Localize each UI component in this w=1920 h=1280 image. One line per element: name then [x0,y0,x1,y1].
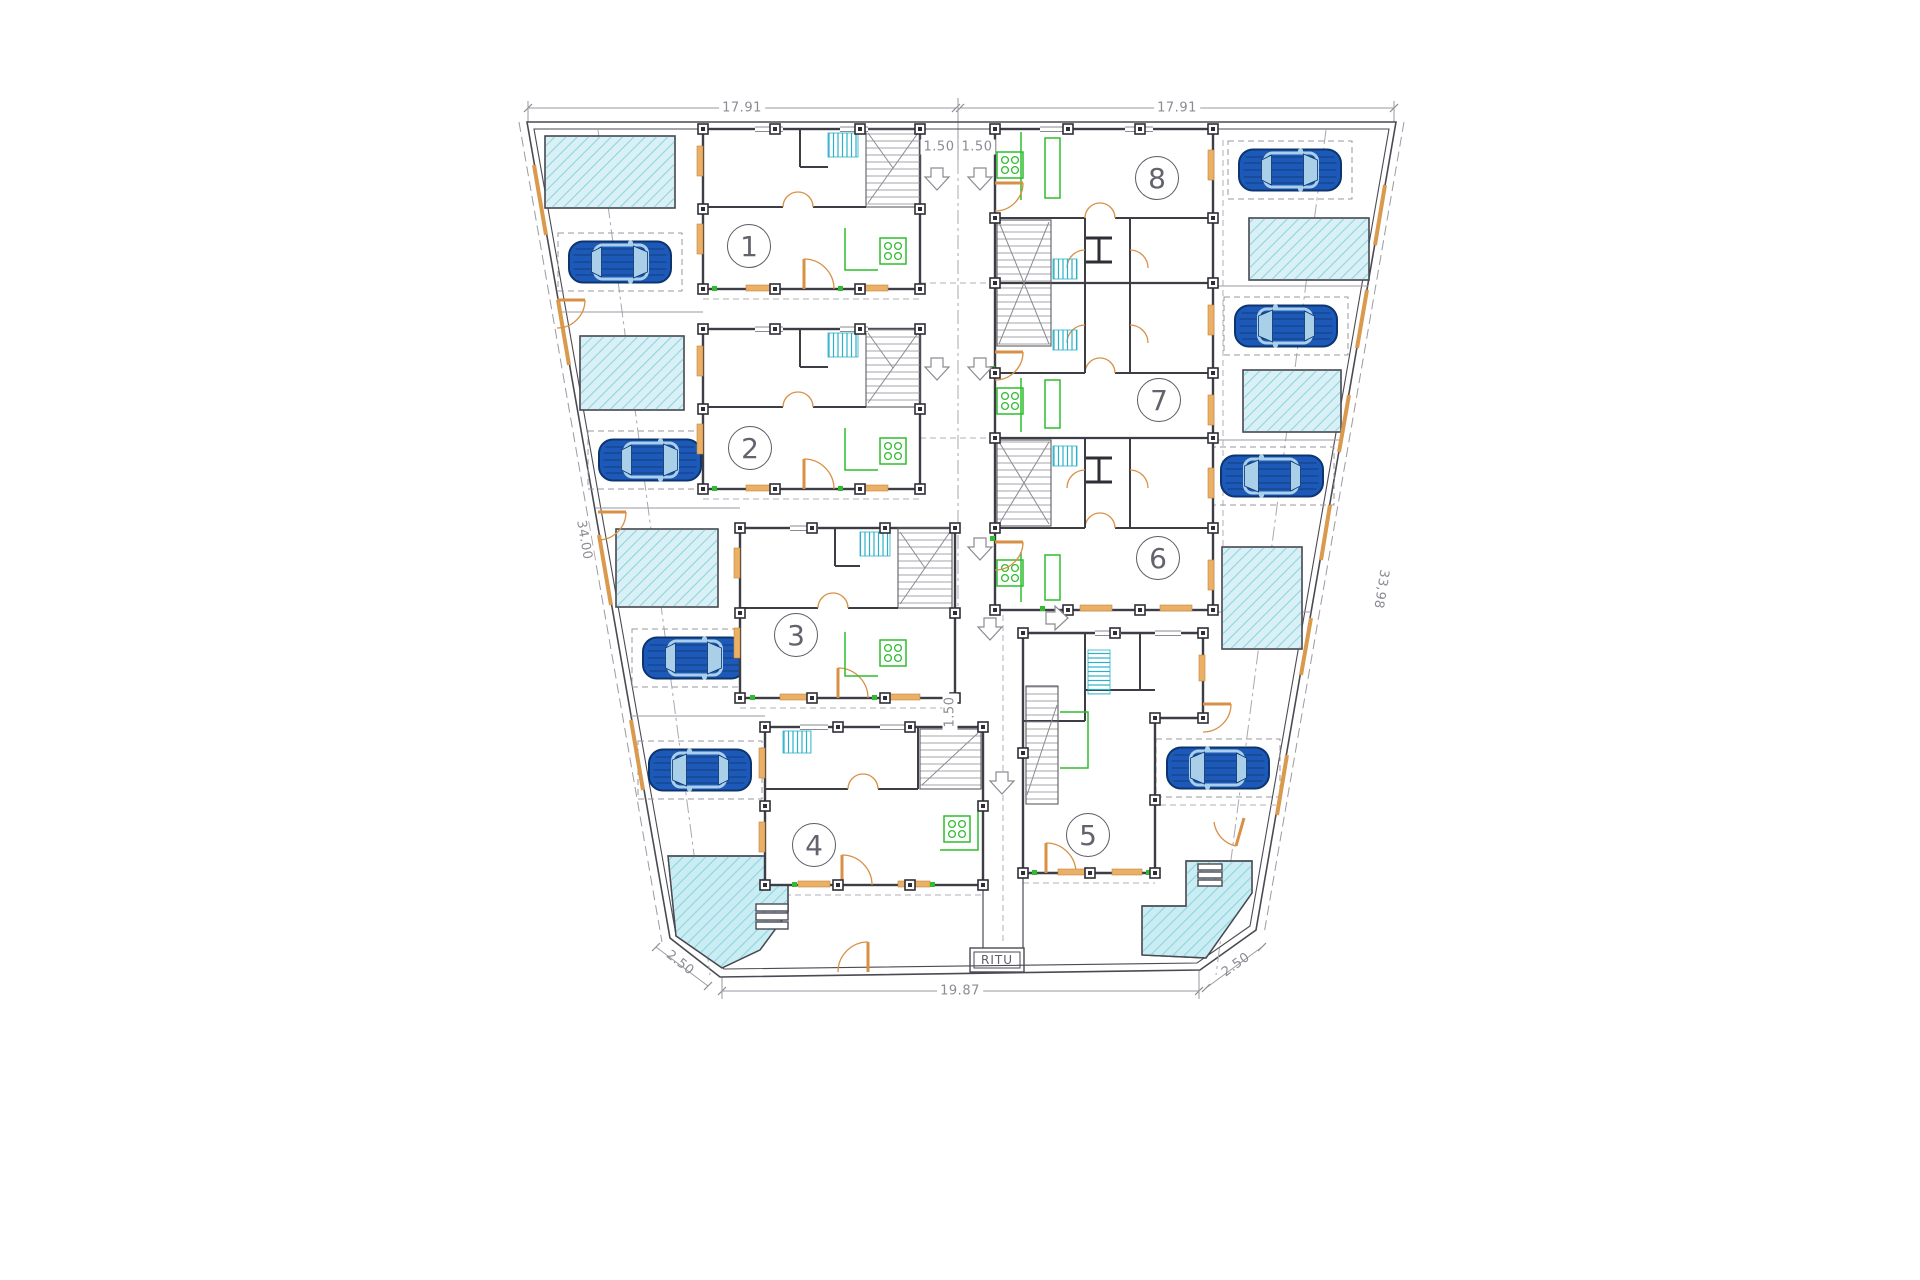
pool-unit2 [580,336,684,410]
building-unit1 [697,126,920,292]
car-icon [599,438,701,481]
car-icon [643,636,745,679]
entry-direction-arrow-icon [925,358,949,380]
utility-box-frame [970,948,1024,972]
car-icon [1239,148,1341,191]
kitchen-stove-icon [880,238,906,264]
car-icon [1235,304,1337,347]
pool-unit1 [545,136,675,208]
pool-unit6 [1222,547,1302,649]
entry-direction-arrow-icon [968,168,992,190]
entry-direction-arrow-icon [978,618,1002,640]
floor-plan-canvas: 17.91 17.91 1.50 1.50 34.00 33,98 1.50 1… [0,0,1920,1280]
entry-direction-arrow-icon [968,358,992,380]
kitchen-stove-icon [997,152,1023,178]
site-plan-drawing [0,0,1920,1280]
entry-direction-arrow-icon [968,538,992,560]
kitchen-stove-icon [944,816,970,842]
car-icon [569,240,671,283]
kitchen-stove-icon [997,388,1023,414]
entry-direction-arrow-icon [990,772,1014,794]
fixture-grille-icon [1053,259,1077,279]
fixture-grille-icon [1053,330,1077,350]
entry-direction-arrow-icon [925,168,949,190]
buildings [697,126,1231,888]
stairs-icon [1026,686,1058,804]
kitchen-stove-icon [880,438,906,464]
building-unit2 [697,326,920,492]
fixture-grille-icon [783,731,811,753]
car-icon [1167,746,1269,789]
building-unit3 [734,525,955,701]
car-icon [1221,454,1323,497]
car-icon [649,748,751,791]
fixture-grille-icon [828,333,858,357]
fixture-grille-icon [860,532,890,556]
pool-unit8 [1249,218,1369,280]
pool-unit7 [1243,370,1341,432]
kitchen-stove-icon [997,560,1023,586]
kitchen-stove-icon [880,640,906,666]
pool-unit3 [616,529,718,607]
fixture-grille-icon [828,133,858,157]
building-units-8-7-6 [990,126,1214,612]
fixture-grille-icon [1053,446,1077,466]
building-unit4 [759,724,983,888]
fixture-grille-icon [1088,650,1110,694]
